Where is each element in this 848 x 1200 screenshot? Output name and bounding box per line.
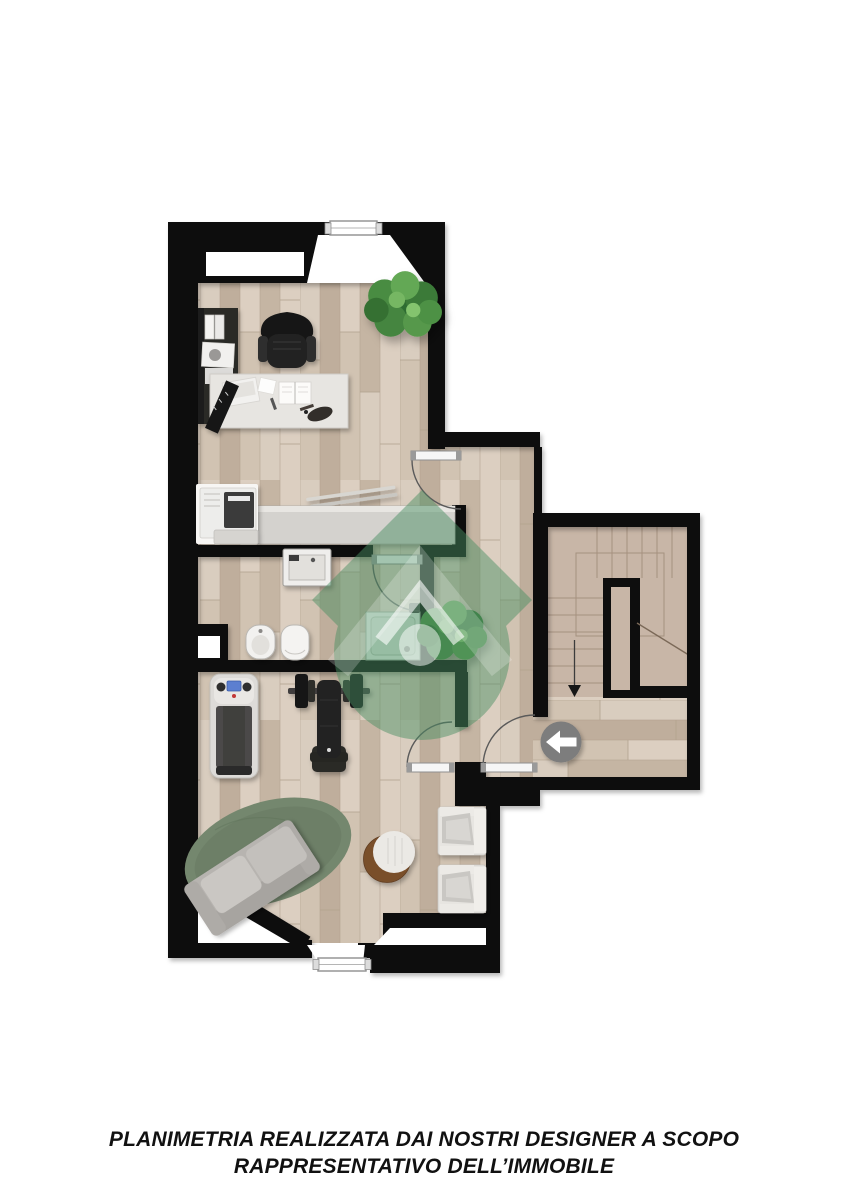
- bathroom-sink: [283, 549, 331, 586]
- bidet: [246, 625, 275, 659]
- notepad: [258, 377, 277, 394]
- armchair-1: [438, 807, 486, 855]
- wall-niche-top: [206, 252, 304, 276]
- disclaimer-line-1: PLANIMETRIA REALIZZATA DAI NOSTRI DESIGN…: [0, 1126, 848, 1153]
- floor-plan: [0, 0, 848, 1200]
- treadmill: [210, 674, 258, 778]
- window-top: [325, 221, 382, 235]
- office-chair: [258, 312, 316, 368]
- window-bottom: [313, 958, 371, 971]
- page-background: PLANIMETRIA REALIZZATA DAI NOSTRI DESIGN…: [0, 0, 848, 1200]
- office-desk: [205, 374, 348, 434]
- binder: [215, 315, 224, 339]
- toilet: [281, 625, 309, 660]
- entry-arrow-icon: [541, 722, 582, 763]
- disclaimer-line-2: RAPPRESENTATIVO DELL’IMMOBILE: [0, 1153, 848, 1180]
- armchair-2: [438, 865, 486, 913]
- low-height-inset-right: [374, 928, 486, 945]
- printer: [196, 484, 258, 544]
- stair-bottom-wall: [640, 686, 687, 698]
- faucet: [311, 558, 315, 562]
- disclaimer: PLANIMETRIA REALIZZATA DAI NOSTRI DESIGN…: [0, 1126, 848, 1180]
- stair-core-void: [611, 587, 630, 690]
- binder: [205, 315, 214, 339]
- treadmill-screen: [227, 681, 241, 691]
- wall-niche-bath: [198, 636, 220, 658]
